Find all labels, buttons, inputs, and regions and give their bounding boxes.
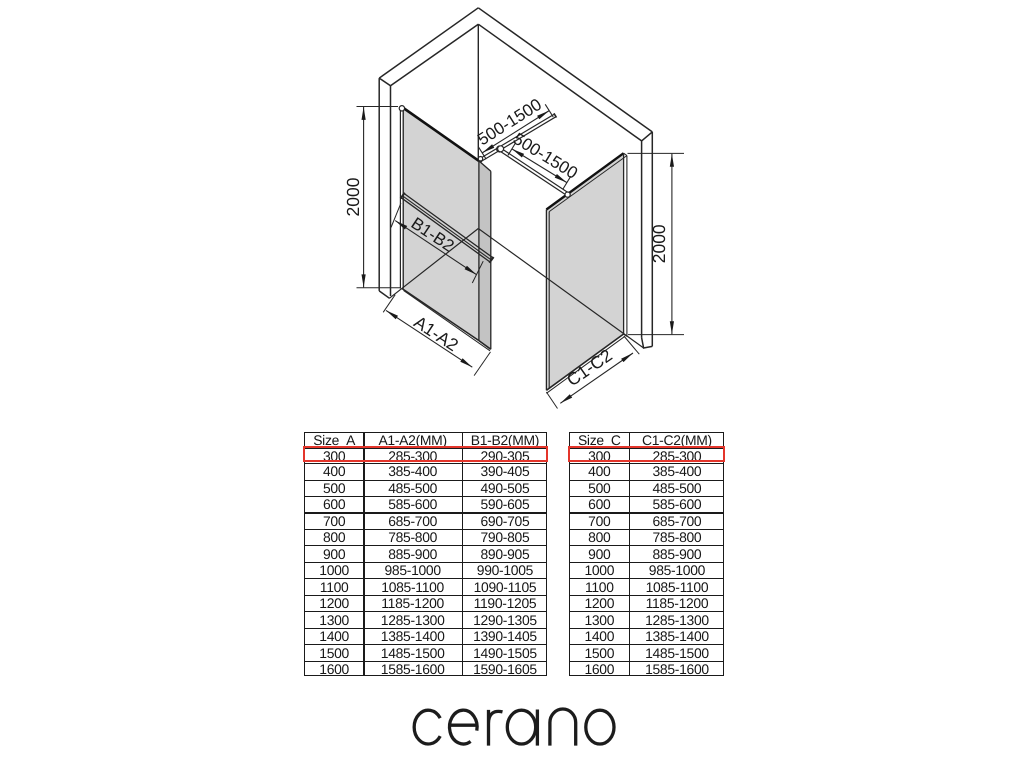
svg-text:2000: 2000 bbox=[649, 224, 669, 263]
svg-text:2000: 2000 bbox=[343, 177, 363, 216]
